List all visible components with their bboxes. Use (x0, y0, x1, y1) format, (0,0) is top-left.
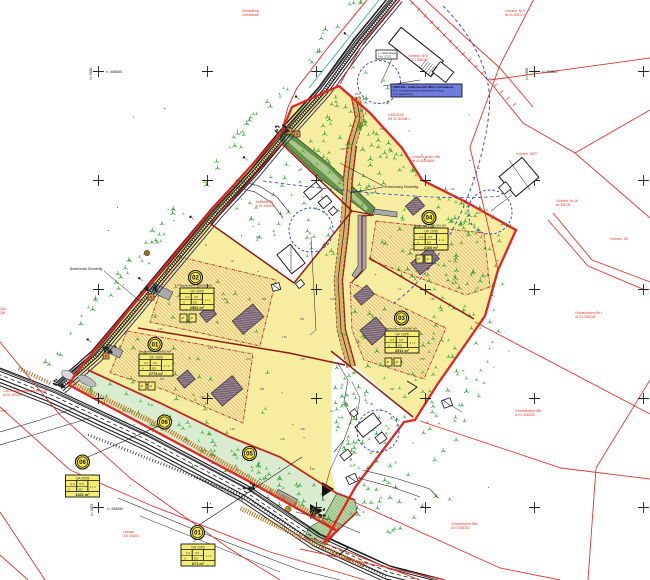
svg-text:05: 05 (246, 452, 253, 458)
svg-text:h= 5855: h= 5855 (90, 504, 94, 516)
svg-text:2773 m²: 2773 m² (149, 372, 164, 376)
svg-text:Baufenster P 460/460 WA: Baufenster P 460/460 WA (385, 327, 417, 331)
svg-text:P: P (182, 316, 185, 321)
svg-text:Baufenster P 461/461 WA: Baufenster P 461/461 WA (414, 224, 446, 228)
svg-text:4.50: 4.50 (340, 148, 345, 151)
svg-text:Flst. 271/2: Flst. 271/2 (378, 55, 392, 59)
svg-text:2911 m²: 2911 m² (395, 349, 410, 353)
svg-text:P820 002 - Außenbereich 580 m: P820 002 - Außenbereich 580 m vorhandene (393, 85, 454, 89)
svg-text:0.4: 0.4 (186, 551, 191, 555)
svg-text:40 0 305/282: 40 0 305/282 (451, 526, 470, 530)
svg-text:01: 01 (152, 343, 159, 349)
svg-text:h= 5856: h= 5856 (525, 68, 529, 80)
svg-text:1.80: 1.80 (230, 428, 235, 431)
svg-text:1 / 1: 1 / 1 (164, 364, 170, 368)
svg-text:0.4: 0.4 (71, 482, 76, 486)
svg-text:kf: kf (350, 458, 352, 461)
svg-text:1 / 1: 1 / 1 (410, 341, 416, 345)
svg-text:284: 284 (0, 311, 6, 315)
svg-text:GF 1005: GF 1005 (149, 355, 162, 359)
svg-text:4.50: 4.50 (208, 347, 213, 350)
svg-text:Baufenster P 459/459 WA: Baufenster P 459/459 WA (139, 350, 171, 354)
svg-text:458: 458 (380, 128, 385, 131)
svg-text:06: 06 (161, 420, 168, 426)
svg-text:1 / 1: 1 / 1 (206, 554, 212, 558)
svg-text:0.6: 0.6 (428, 235, 433, 239)
svg-text:Baufenster P 458/458 WA: Baufenster P 458/458 WA (180, 284, 212, 288)
svg-text:1.80: 1.80 (300, 358, 305, 361)
svg-text:06: 06 (79, 460, 86, 466)
svg-text:4.50: 4.50 (420, 358, 425, 361)
svg-text:302 305/04: 302 305/04 (123, 534, 139, 538)
svg-text:03: 03 (398, 316, 405, 322)
svg-text:II: II (142, 367, 144, 371)
svg-text:2160 m²: 2160 m² (424, 246, 439, 250)
svg-text:1.80: 1.80 (450, 188, 455, 191)
svg-text:tel 305-00: tel 305-00 (556, 203, 570, 207)
svg-text:40-01 305/284: 40-01 305/284 (575, 315, 596, 319)
svg-text:4.50: 4.50 (158, 328, 163, 331)
svg-text:1 / 1: 1 / 1 (439, 238, 445, 242)
svg-text:GF 1005: GF 1005 (190, 289, 203, 293)
svg-text:45.8: 45.8 (330, 298, 335, 301)
svg-text:0.6: 0.6 (195, 551, 200, 555)
svg-text:II: II (69, 488, 71, 492)
svg-text:II: II (183, 301, 185, 305)
svg-text:458: 458 (260, 388, 265, 391)
svg-text:Bestehende Stromleitg.: Bestehende Stromleitg. (70, 267, 103, 271)
svg-text:1.80: 1.80 (300, 428, 305, 431)
svg-text:II: II (184, 557, 186, 561)
svg-text:458: 458 (160, 378, 165, 381)
svg-text:40 01 305/287: 40 01 305/287 (408, 58, 429, 62)
svg-text:r= 458650: r= 458650 (107, 507, 123, 511)
svg-text:671 m²: 671 m² (192, 562, 205, 566)
svg-text:II: II (417, 241, 419, 245)
svg-text:P: P (396, 360, 399, 365)
svg-text:40 m: 40 m (0, 409, 7, 413)
svg-text:45.8: 45.8 (476, 212, 481, 215)
svg-text:kf: kf (205, 244, 207, 247)
svg-text:0.6: 0.6 (399, 338, 404, 342)
svg-text:A 01 305/203: A 01 305/203 (256, 204, 275, 208)
svg-text:P: P (191, 316, 194, 321)
svg-text:0.6: 0.6 (194, 295, 199, 299)
svg-text:1.80: 1.80 (430, 298, 435, 301)
svg-text:Vöhrenbach: Vöhrenbach (242, 13, 259, 17)
svg-text:r= 458800: r= 458800 (542, 70, 557, 74)
svg-text:1.80: 1.80 (282, 336, 287, 339)
svg-text:0.4: 0.4 (185, 295, 190, 299)
svg-text:0.4: 0.4 (144, 361, 149, 365)
svg-text:GF 1005: GF 1005 (424, 229, 437, 233)
svg-text:A 0 0 305/282: A 0 0 305/282 (515, 413, 535, 417)
svg-text:kd 01 305/287: kd 01 305/287 (3, 393, 23, 397)
svg-text:P: P (418, 257, 421, 262)
svg-text:GA 1005: GA 1005 (191, 545, 204, 549)
svg-text:1.80: 1.80 (200, 396, 205, 399)
svg-text:0.4: 0.4 (419, 235, 424, 239)
svg-text:AB 01 00/208 1: AB 01 00/208 1 (388, 117, 410, 121)
svg-text:GA 1005: GA 1005 (76, 476, 89, 480)
svg-text:h= 5856: h= 5856 (89, 68, 93, 80)
svg-text:458: 458 (300, 318, 305, 321)
svg-text:0.4: 0.4 (390, 338, 395, 342)
svg-text:Einmündung Stromleitg.: Einmündung Stromleitg. (385, 185, 419, 189)
svg-text:12.5: 12.5 (246, 358, 251, 361)
svg-text:04: 04 (426, 216, 433, 222)
svg-text:P: P (150, 384, 153, 389)
svg-text:45.8: 45.8 (355, 93, 360, 96)
svg-text:60 m Gewässerabstand vorhanden: 60 m Gewässerabstand vorhandene Leitung (393, 89, 445, 93)
svg-text:tel 01 305-0 0: tel 01 305-0 0 (505, 13, 525, 17)
svg-text:r= 458650: r= 458650 (106, 70, 122, 74)
svg-text:1.80: 1.80 (280, 438, 285, 441)
svg-text:1421 m²: 1421 m² (75, 493, 90, 497)
svg-text:0.6: 0.6 (80, 482, 85, 486)
svg-text:458: 458 (256, 236, 261, 239)
svg-text:0.6: 0.6 (153, 361, 158, 365)
svg-text:II: II (388, 344, 390, 348)
svg-text:458: 458 (390, 388, 395, 391)
svg-text:1.80: 1.80 (222, 298, 227, 301)
svg-text:01: 01 (194, 531, 201, 537)
svg-text:tel 03 305/0808: tel 03 305/0808 (412, 159, 434, 163)
svg-text:P: P (427, 257, 430, 262)
svg-text:1 / 1: 1 / 1 (205, 298, 211, 302)
svg-text:02: 02 (192, 276, 199, 282)
svg-text:1 / 1: 1 / 1 (90, 485, 96, 489)
svg-text:P: P (387, 360, 390, 365)
svg-text:2502 m²: 2502 m² (190, 306, 205, 310)
svg-text:Vöhrenb. 26/27: Vöhrenb. 26/27 (516, 152, 538, 156)
svg-text:Vöhrenb. Str.: Vöhrenb. Str. (610, 237, 629, 241)
svg-text:P: P (141, 384, 144, 389)
svg-text:458: 458 (262, 298, 267, 301)
svg-text:5 m² Abgrenzung: 5 m² Abgrenzung (393, 92, 413, 96)
svg-text:GF 1005: GF 1005 (395, 332, 408, 336)
svg-text:4.50: 4.50 (310, 468, 315, 471)
